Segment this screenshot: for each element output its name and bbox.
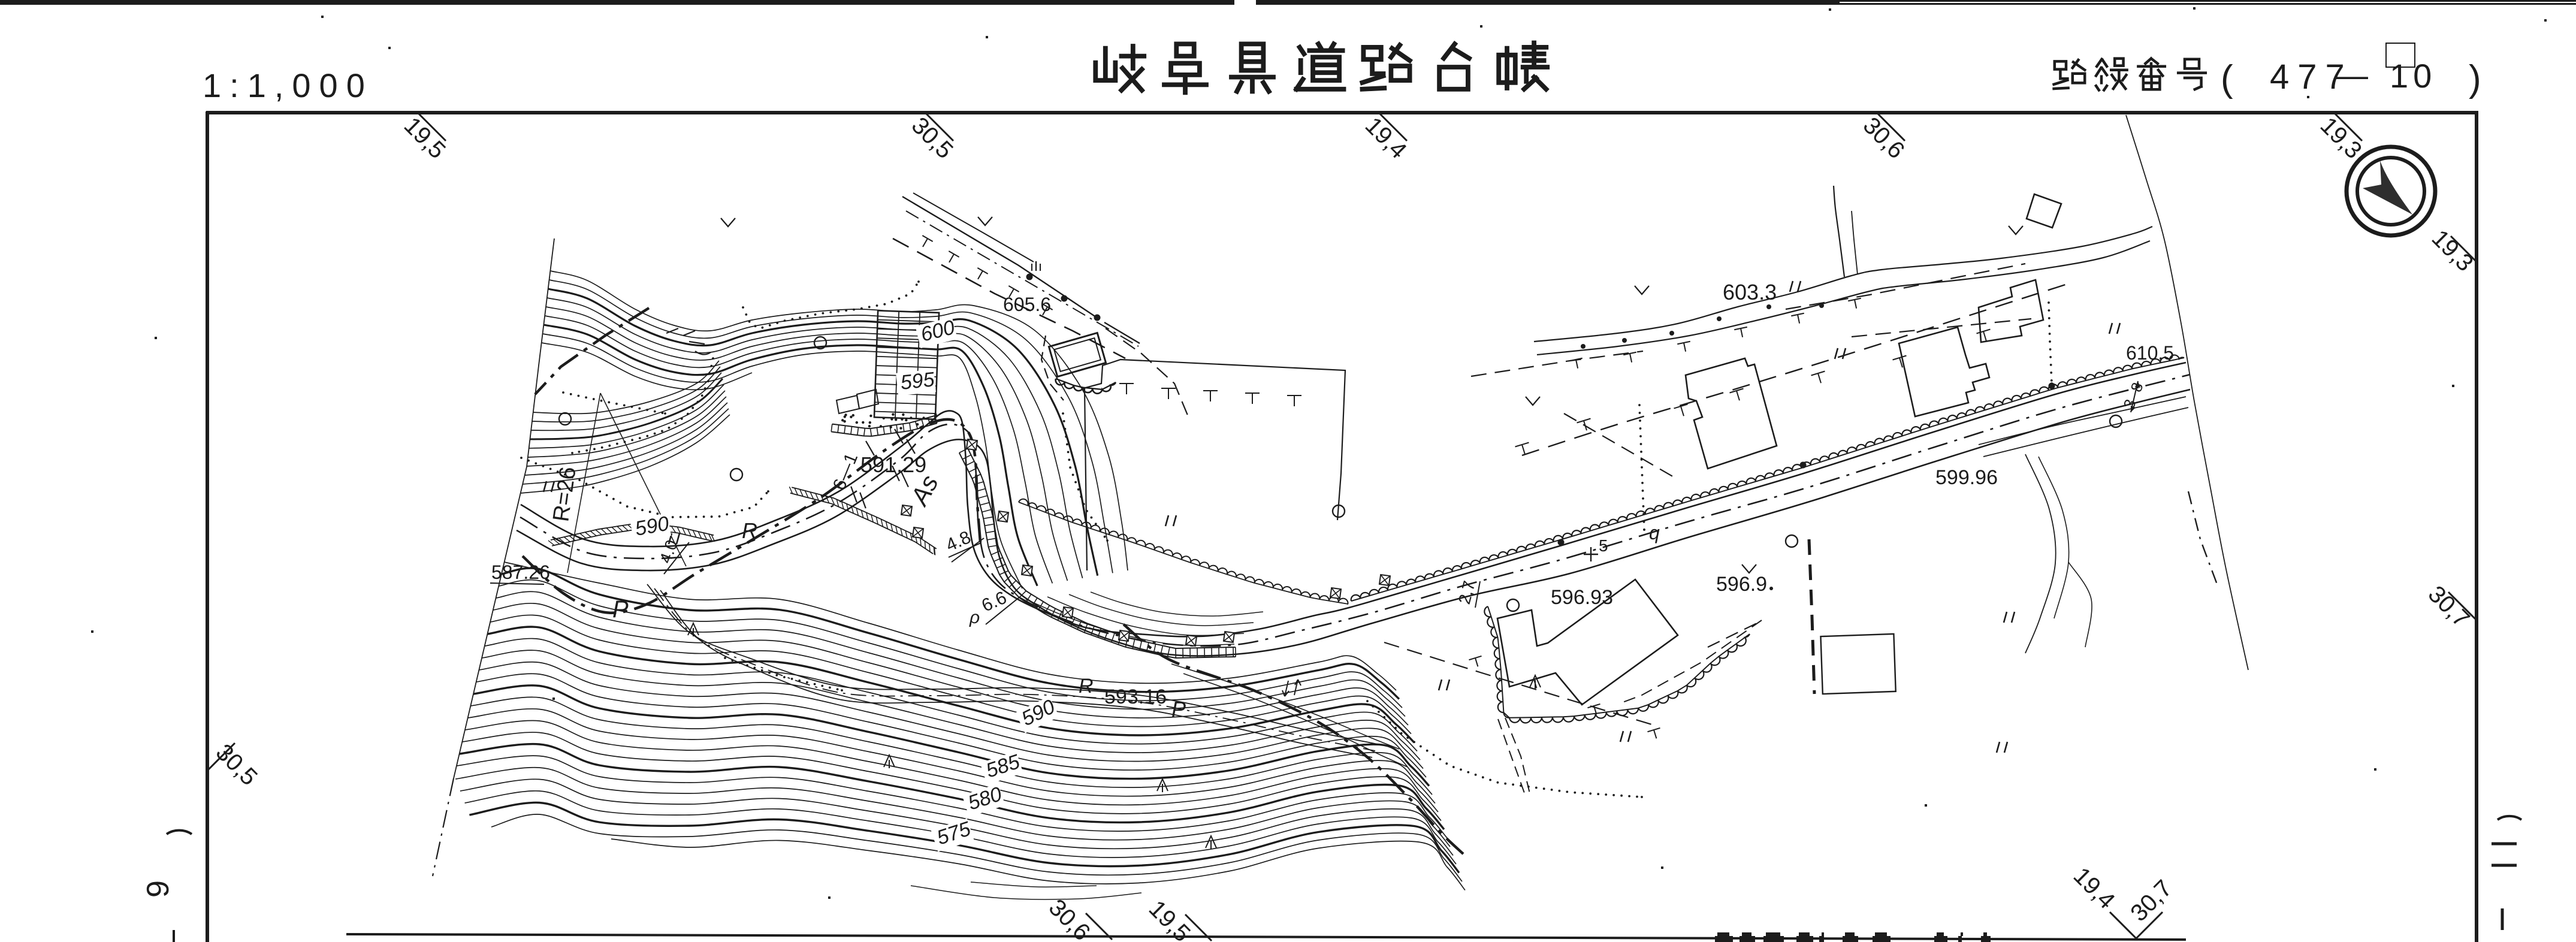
svg-text:): ) bbox=[2469, 58, 2481, 99]
svg-text:599.96: 599.96 bbox=[1935, 466, 1998, 489]
svg-text:610.5: 610.5 bbox=[2126, 342, 2174, 364]
svg-text:(: ( bbox=[2221, 58, 2233, 99]
svg-text:P: P bbox=[612, 596, 629, 623]
svg-text:595: 595 bbox=[899, 368, 935, 394]
svg-text:9: 9 bbox=[141, 880, 176, 898]
svg-text:605.6: 605.6 bbox=[1003, 294, 1051, 315]
svg-text:1:1,000: 1:1,000 bbox=[203, 67, 373, 104]
svg-text:ρ: ρ bbox=[969, 608, 980, 627]
svg-text:P: P bbox=[1171, 697, 1186, 721]
svg-text:596.93: 596.93 bbox=[1551, 586, 1613, 609]
svg-text:R: R bbox=[1079, 675, 1094, 698]
svg-text:587.26: 587.26 bbox=[491, 561, 550, 583]
svg-text:10: 10 bbox=[2390, 57, 2436, 95]
svg-text:591.29: 591.29 bbox=[860, 452, 926, 477]
svg-text:q: q bbox=[1649, 522, 1660, 544]
svg-text:—: — bbox=[2336, 58, 2368, 93]
svg-text:R: R bbox=[742, 518, 757, 543]
svg-text:603.3: 603.3 bbox=[1723, 280, 1777, 304]
svg-text:596.9: 596.9 bbox=[1716, 573, 1767, 596]
svg-text:593.16: 593.16 bbox=[1104, 686, 1167, 708]
svg-text:5: 5 bbox=[1599, 536, 1608, 555]
